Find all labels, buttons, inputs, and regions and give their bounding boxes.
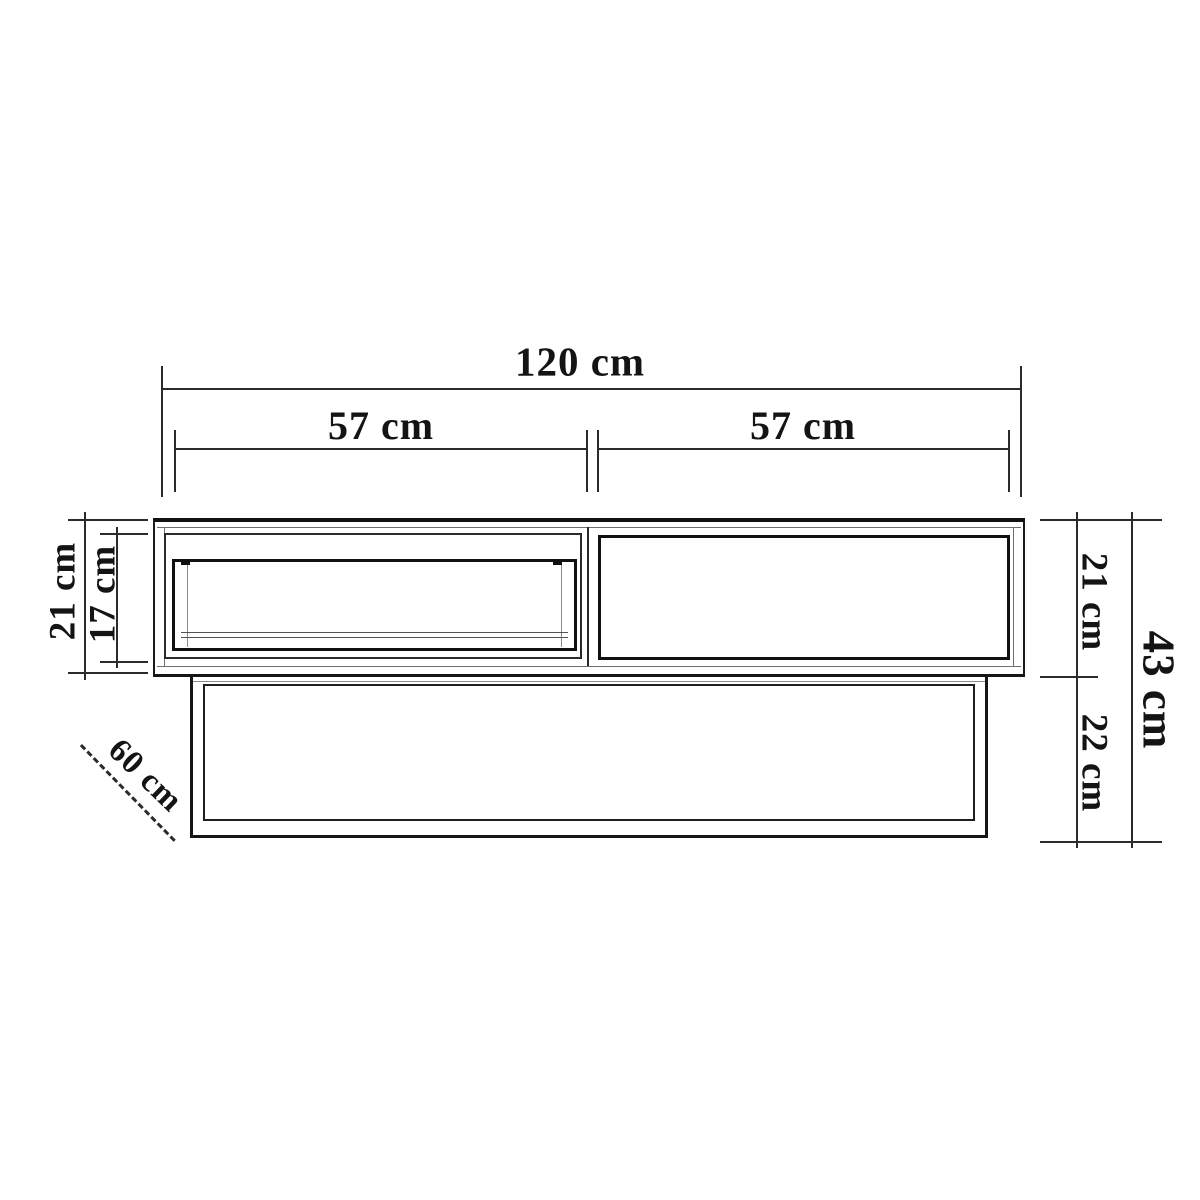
tick-left-bottom (68, 672, 148, 674)
dim-label-right-section-width: 57 cm (750, 406, 856, 446)
dim-label-total-height: 43 cm (1136, 631, 1181, 750)
tick-right-bottom (1040, 841, 1162, 843)
dim-line-right-sections-height (1076, 512, 1078, 848)
door-panel (598, 535, 1010, 660)
dim-line-left-section (175, 448, 587, 450)
dim-line-right-section (598, 448, 1009, 450)
dim-line-total-height (1131, 512, 1133, 848)
extension-line-total-width-left (161, 366, 163, 497)
cabinet-inner-top-line (157, 527, 1021, 528)
tick-right-middle (1040, 676, 1098, 678)
dim-label-base-height: 22 cm (1076, 714, 1113, 813)
cabinet-inner-right-line (1013, 527, 1014, 666)
drawer-corner-mark-right (553, 559, 562, 565)
cabinet-inner-bottom-line (157, 666, 1021, 667)
tick-drawer-bottom (100, 661, 148, 663)
drawer-corner-mark-left (181, 559, 190, 565)
extension-line-section-mid-right (597, 430, 599, 492)
dim-line-left-unit-height (84, 512, 86, 680)
tick-right-top (1040, 519, 1162, 521)
base-unit-top-line (193, 681, 985, 682)
base-unit-inner-panel (203, 684, 975, 821)
dim-line-total-width (162, 388, 1022, 390)
tick-left-top (68, 519, 148, 521)
dim-label-left-section-width: 57 cm (328, 406, 434, 446)
cabinet-divider (587, 527, 589, 666)
dim-line-drawer-opening-height (116, 527, 118, 668)
drawer-handle-line (181, 632, 568, 638)
dim-label-total-width: 120 cm (515, 342, 645, 383)
dim-label-left-unit-height: 21 cm (45, 542, 82, 641)
extension-line-total-width-right (1020, 366, 1022, 497)
extension-line-section-left (174, 430, 176, 492)
extension-line-section-right (1008, 430, 1010, 492)
extension-line-section-mid-left (586, 430, 588, 492)
dimension-drawing: 120 cm 57 cm 57 cm 21 cm 17 cm 21 cm 22 … (0, 0, 1200, 1200)
tick-drawer-top (100, 533, 148, 535)
dim-label-right-top-height: 21 cm (1076, 553, 1113, 652)
dim-label-depth: 60 cm (102, 733, 189, 818)
